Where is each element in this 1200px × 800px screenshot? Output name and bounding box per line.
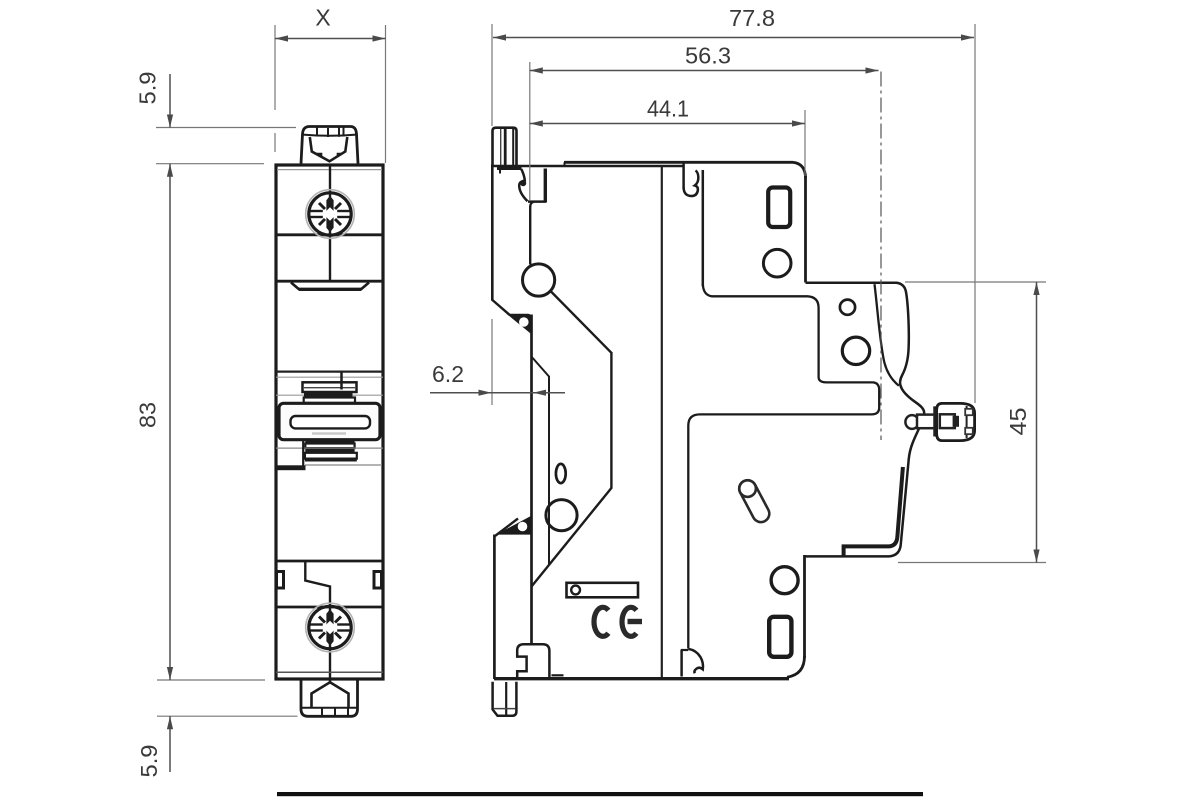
svg-text:56.3: 56.3 (685, 42, 731, 68)
svg-text:45: 45 (1005, 408, 1031, 436)
svg-text:X: X (315, 5, 330, 31)
svg-text:44.1: 44.1 (647, 95, 689, 121)
svg-text:83: 83 (135, 402, 161, 428)
svg-text:5.9: 5.9 (135, 72, 161, 105)
svg-text:6.2: 6.2 (432, 361, 464, 387)
svg-text:5.9: 5.9 (136, 745, 162, 778)
svg-text:77.8: 77.8 (729, 5, 775, 31)
